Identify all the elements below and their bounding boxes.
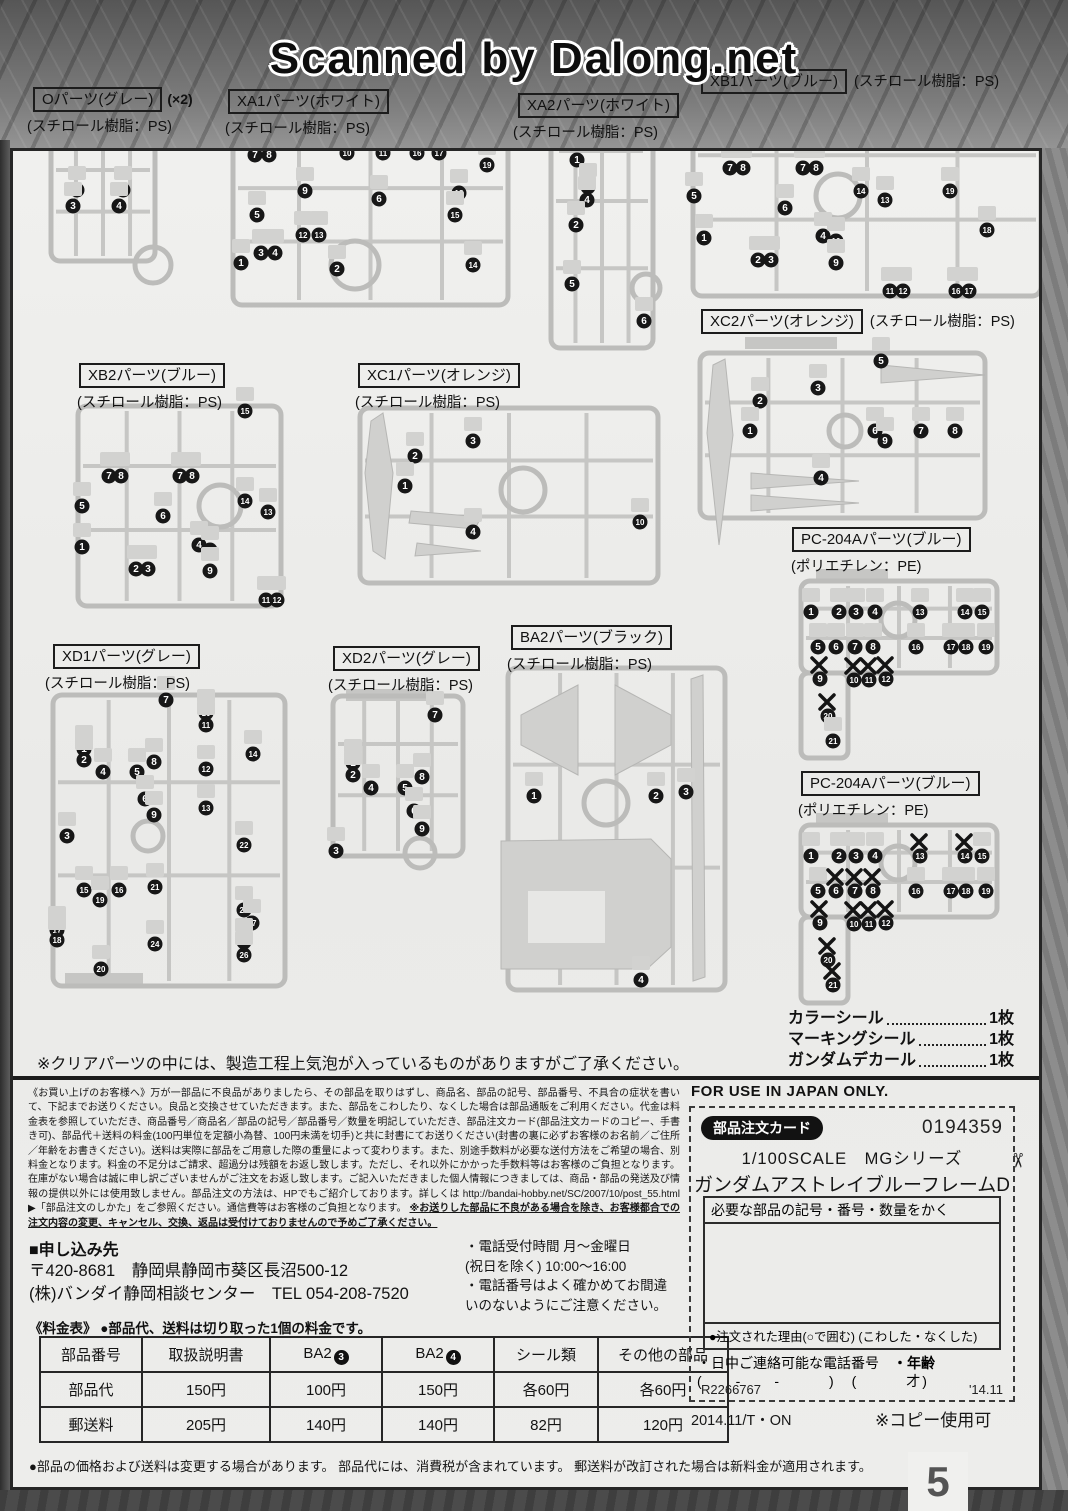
svg-text:7: 7 — [852, 886, 858, 897]
phone-hours-info: ・電話受付時間 月〜金曜日(祝日を除く) 10:00〜16:00・電話番号はよく… — [465, 1237, 667, 1315]
sticker-count: 1枚 — [989, 1046, 1014, 1070]
runner-label-XA2: XA2パーツ(ホワイト)(スチロール樹脂：PS) — [518, 93, 679, 142]
svg-text:4: 4 — [470, 527, 476, 538]
missing-part-x-mark — [812, 658, 826, 672]
svg-text:12: 12 — [299, 231, 308, 240]
missing-part-x-mark — [820, 695, 834, 709]
price-table: 部品番号取扱説明書BA23BA24シール類その他の部品部品代150円100円15… — [39, 1336, 729, 1443]
runner-label-BA2: BA2パーツ(ブラック)(スチロール樹脂：PS) — [511, 625, 672, 674]
price-table-cell: 82円 — [494, 1407, 598, 1442]
order-card-ref: R2266767 — [701, 1382, 761, 1397]
runner-PC-204A-2: 123413141556781617181991011122021 — [801, 813, 997, 1003]
svg-text:12: 12 — [882, 919, 891, 928]
svg-text:14: 14 — [469, 261, 478, 270]
scan-right-margin — [1042, 148, 1068, 1490]
svg-text:1: 1 — [79, 542, 85, 553]
sticker-list-item: ガンダムデカール1枚 — [788, 1049, 1014, 1070]
svg-text:13: 13 — [916, 852, 925, 861]
customer-notice: 《お買い上げのお客様へ》万が一部品に不良品がありましたら、その部品を取りはずし、… — [28, 1087, 680, 1231]
price-table-header: シール類 — [494, 1337, 598, 1372]
runner-name: XD2パーツ(グレー) — [333, 646, 480, 671]
svg-text:3: 3 — [258, 248, 264, 259]
svg-text:3: 3 — [853, 607, 859, 618]
svg-text:5: 5 — [815, 886, 821, 897]
svg-text:13: 13 — [264, 508, 273, 517]
svg-text:4: 4 — [272, 248, 278, 259]
svg-text:8: 8 — [419, 772, 425, 783]
phone-info-line: ・電話受付時間 月〜金曜日 — [465, 1237, 667, 1257]
price-table-cell: 郵送料 — [40, 1407, 142, 1442]
order-form-write-area — [705, 1224, 999, 1322]
svg-text:7: 7 — [252, 151, 258, 161]
manual-page: 1234781011161719918651512131342141342561… — [10, 148, 1042, 1490]
runner-label-PC-204A-2: PC-204Aパーツ(ブルー)(ポリエチレン：PE) — [801, 771, 980, 820]
svg-text:8: 8 — [870, 886, 876, 897]
scan-left-edge — [0, 140, 10, 1511]
price-table-cell: 各60円 — [494, 1372, 598, 1407]
runner-material: (ポリエチレン：PE) — [791, 555, 971, 576]
svg-text:11: 11 — [886, 287, 895, 296]
svg-text:2: 2 — [653, 791, 659, 802]
svg-text:2: 2 — [133, 564, 139, 575]
copy-permission-note: ※コピー使用可 — [875, 1406, 991, 1431]
svg-text:14: 14 — [857, 187, 866, 196]
svg-text:26: 26 — [240, 951, 249, 960]
svg-text:4: 4 — [872, 851, 878, 862]
order-form-instruction: 必要な部品の記号・番号・数量をかく — [705, 1198, 999, 1224]
runner-XA1: 78101116171991865151213134214 — [232, 151, 508, 305]
svg-text:3: 3 — [470, 436, 476, 447]
svg-text:8: 8 — [189, 471, 195, 482]
svg-text:11: 11 — [379, 151, 388, 158]
japan-only-note: FOR USE IN JAPAN ONLY. — [691, 1083, 889, 1100]
order-reason-line: ●注文された理由(○で囲む) (こわした・なくした) — [705, 1322, 999, 1348]
svg-text:13: 13 — [202, 804, 211, 813]
parts-order-card: ✂ 部品注文カード 0194359 1/100SCALE MGシリーズ ガンダム… — [689, 1106, 1015, 1402]
svg-text:2: 2 — [350, 770, 356, 781]
svg-text:10: 10 — [850, 920, 859, 929]
order-card-product-name: ガンダムアストレイブルーフレームD — [691, 1170, 1013, 1197]
runner-O: 1234 — [51, 151, 171, 283]
svg-text:7: 7 — [177, 471, 183, 482]
svg-text:1: 1 — [531, 791, 537, 802]
phone-info-line: ・電話番号はよく確かめてお間違 — [465, 1276, 667, 1296]
svg-text:7: 7 — [918, 426, 924, 437]
scissors-icon: ✂ — [1005, 1152, 1030, 1169]
runner-material: (スチロール樹脂：PS) — [513, 121, 679, 142]
price-table-row: 郵送料205円140円140円82円120円 — [40, 1407, 728, 1442]
svg-text:22: 22 — [240, 841, 249, 850]
svg-text:1: 1 — [238, 258, 244, 269]
svg-text:6: 6 — [160, 511, 166, 522]
runner-label-XC1: XC1パーツ(オレンジ)(スチロール樹脂：PS) — [358, 363, 520, 412]
runner-name: PC-204Aパーツ(ブルー) — [792, 527, 971, 552]
runner-name: XA2パーツ(ホワイト) — [518, 93, 679, 118]
runner-name: Oパーツ(グレー) — [33, 87, 162, 112]
runner-XB2: 15787851461314102391112 — [73, 387, 286, 608]
runner-sprues-svg: 1234781011161719918651512131342141342561… — [13, 151, 1039, 1056]
svg-text:11: 11 — [202, 721, 211, 730]
svg-text:9: 9 — [419, 824, 425, 835]
runner-label-XC2: XC2パーツ(オレンジ)(スチロール樹脂：PS) — [701, 309, 1015, 334]
runner-XD1: 7101112144581261393221516211923271718242… — [48, 676, 285, 986]
price-table-cell: 150円 — [382, 1372, 494, 1407]
svg-text:14: 14 — [961, 608, 970, 617]
svg-text:21: 21 — [829, 737, 838, 746]
runner-XA2: 134256 — [551, 151, 660, 348]
price-table-header: 取扱説明書 — [142, 1337, 270, 1372]
svg-text:16: 16 — [912, 643, 921, 652]
svg-text:6: 6 — [782, 203, 788, 214]
svg-text:15: 15 — [80, 886, 89, 895]
svg-text:18: 18 — [962, 887, 971, 896]
missing-part-x-mark — [957, 835, 971, 849]
svg-text:14: 14 — [241, 497, 250, 506]
svg-text:3: 3 — [768, 255, 774, 266]
runner-name: BA2パーツ(ブラック) — [511, 625, 672, 650]
svg-text:19: 19 — [946, 187, 955, 196]
svg-text:8: 8 — [151, 757, 157, 768]
runner-material: (スチロール樹脂：PS) — [225, 117, 389, 138]
svg-text:2: 2 — [334, 264, 340, 275]
svg-text:4: 4 — [818, 473, 824, 484]
svg-text:6: 6 — [376, 194, 382, 205]
order-form-box: 必要な部品の記号・番号・数量をかく ●注文された理由(○で囲む) (こわした・な… — [703, 1196, 1001, 1350]
price-table-cell: 205円 — [142, 1407, 270, 1442]
svg-text:3: 3 — [333, 846, 339, 857]
svg-text:18: 18 — [983, 226, 992, 235]
svg-text:16: 16 — [912, 887, 921, 896]
svg-text:1: 1 — [808, 607, 814, 618]
price-table-title-text: 《料金表》 — [29, 1321, 97, 1336]
svg-text:1: 1 — [747, 426, 753, 437]
svg-text:4: 4 — [116, 201, 122, 212]
svg-text:16: 16 — [413, 151, 422, 158]
scanned-manual-page: { "watermark": "Scanned by Dalong.net", … — [0, 0, 1068, 1511]
phone-info-line: (祝日を除く) 10:00〜16:00 — [465, 1257, 667, 1277]
runner-label-XB2: XB2パーツ(ブルー)(スチロール樹脂：PS) — [79, 363, 225, 412]
age-label: ・年齢 — [893, 1355, 935, 1371]
svg-text:15: 15 — [978, 852, 987, 861]
svg-text:6: 6 — [833, 886, 839, 897]
svg-text:2: 2 — [412, 451, 418, 462]
runner-material: (スチロール樹脂：PS) — [854, 74, 999, 90]
svg-text:7: 7 — [852, 642, 858, 653]
order-card-footer: R2266767 '14.11 — [701, 1382, 1003, 1397]
price-table-header: 部品番号 — [40, 1337, 142, 1372]
svg-text:9: 9 — [151, 810, 157, 821]
svg-text:19: 19 — [96, 896, 105, 905]
runner-name: XD1パーツ(グレー) — [53, 644, 200, 669]
svg-text:1: 1 — [701, 233, 707, 244]
svg-text:1: 1 — [808, 851, 814, 862]
price-table-cell: 140円 — [270, 1407, 382, 1442]
price-table-header: BA24 — [382, 1337, 494, 1372]
runner-material: (スチロール樹脂：PS) — [45, 672, 200, 693]
contact-company-phone: (株)バンダイ静岡相談センター TEL 054-208-7520 — [29, 1280, 409, 1304]
contact-postal-address: 〒420-8681 静岡県静岡市葵区長沼500-12 — [29, 1257, 348, 1281]
runner-label-XD2: XD2パーツ(グレー)(スチロール樹脂：PS) — [333, 646, 480, 695]
watermark: Scanned by Dalong.net — [270, 34, 799, 84]
svg-text:15: 15 — [241, 407, 250, 416]
price-table-subtitle: ●部品代、送料は切り取った1個の料金です。 — [100, 1321, 371, 1336]
dot-leader — [919, 1065, 986, 1067]
svg-text:20: 20 — [97, 965, 106, 974]
runner-name: XC1パーツ(オレンジ) — [358, 363, 520, 388]
section-divider — [13, 1076, 1039, 1080]
order-card-badge: 部品注文カード — [701, 1116, 823, 1140]
svg-text:9: 9 — [207, 566, 213, 577]
runner-XC2: 532167894 — [700, 337, 985, 545]
runner-name: PC-204Aパーツ(ブルー) — [801, 771, 980, 796]
order-card-code: 0194359 — [922, 1117, 1003, 1139]
runner-material: (スチロール樹脂：PS) — [77, 391, 225, 412]
svg-text:9: 9 — [817, 918, 823, 929]
runner-XC1: 231410 — [360, 408, 658, 583]
clear-parts-note: ※クリアパーツの中には、製造工程上気泡が入っているものがありますがご了承ください… — [37, 1050, 689, 1074]
price-table-title: 《料金表》 ●部品代、送料は切り取った1個の料金です。 — [29, 1317, 371, 1337]
svg-text:17: 17 — [947, 887, 956, 896]
svg-text:16: 16 — [115, 886, 124, 895]
svg-text:10: 10 — [850, 676, 859, 685]
missing-part-x-mark — [820, 939, 834, 953]
svg-text:2: 2 — [836, 607, 842, 618]
runner-BA2: 1234 — [501, 668, 725, 990]
phone-label: ・日中ご連絡可能な電話番号 — [697, 1355, 879, 1371]
price-table-header: BA23 — [270, 1337, 382, 1372]
price-table-cell: 100円 — [270, 1372, 382, 1407]
svg-text:7: 7 — [432, 710, 438, 721]
runner-name: XC2パーツ(オレンジ) — [701, 309, 863, 334]
circled-number: 4 — [446, 1350, 461, 1365]
svg-text:4: 4 — [368, 783, 374, 794]
price-table-cell: 部品代 — [40, 1372, 142, 1407]
svg-text:24: 24 — [151, 940, 160, 949]
svg-text:4: 4 — [820, 231, 826, 242]
svg-text:5: 5 — [79, 501, 85, 512]
svg-text:13: 13 — [315, 231, 324, 240]
svg-text:19: 19 — [483, 161, 492, 170]
svg-text:4: 4 — [872, 607, 878, 618]
runner-material: (スチロール樹脂：PS) — [328, 674, 480, 695]
svg-text:13: 13 — [916, 608, 925, 617]
order-card-date: '14.11 — [969, 1382, 1003, 1397]
runner-name: XB2パーツ(ブルー) — [79, 363, 225, 388]
svg-text:7: 7 — [163, 695, 169, 706]
svg-text:21: 21 — [151, 883, 160, 892]
phone-age-line: ・日中ご連絡可能な電話番号・年齢 — [697, 1353, 935, 1373]
svg-text:4: 4 — [638, 975, 644, 986]
svg-text:17: 17 — [947, 643, 956, 652]
svg-text:5: 5 — [878, 356, 884, 367]
svg-text:2: 2 — [755, 255, 761, 266]
svg-text:14: 14 — [249, 750, 258, 759]
svg-text:8: 8 — [813, 163, 819, 174]
price-footnote: ●部品の価格および送料は変更する場合があります。 部品代には、消費税が含まれてい… — [29, 1456, 872, 1475]
page-number: 5 — [908, 1452, 968, 1511]
svg-text:8: 8 — [118, 471, 124, 482]
missing-part-x-mark — [878, 902, 892, 916]
svg-text:7: 7 — [800, 163, 806, 174]
svg-text:2: 2 — [836, 851, 842, 862]
order-card-header-row: 部品注文カード 0194359 — [701, 1116, 1003, 1140]
svg-text:9: 9 — [882, 436, 888, 447]
price-table-cell: 140円 — [382, 1407, 494, 1442]
runner-material: (スチロール樹脂：PS) — [355, 391, 520, 412]
svg-text:5: 5 — [254, 210, 260, 221]
runner-label-XA1: XA1パーツ(ホワイト)(スチロール樹脂：PS) — [228, 89, 389, 138]
svg-text:5: 5 — [691, 191, 697, 202]
parts-runner-diagrams: 1234781011161719918651512131342141342561… — [13, 151, 1039, 1071]
svg-text:11: 11 — [865, 676, 874, 685]
svg-text:7: 7 — [106, 471, 112, 482]
svg-text:16: 16 — [952, 287, 961, 296]
customer-notice-body: 《お買い上げのお客様へ》万が一部品に不良品がありましたら、その部品を取りはずし、… — [28, 1088, 680, 1214]
svg-text:3: 3 — [70, 201, 76, 212]
svg-text:18: 18 — [53, 936, 62, 945]
print-code: 2014.11/T・ON — [691, 1409, 791, 1430]
order-card-scale-line: 1/100SCALE MGシリーズ — [691, 1145, 1013, 1169]
svg-text:3: 3 — [815, 383, 821, 394]
phone-info-line: いのないようにご注意ください。 — [465, 1296, 667, 1316]
svg-text:17: 17 — [435, 151, 444, 158]
runner-material: (スチロール樹脂：PS) — [870, 314, 1015, 330]
svg-text:9: 9 — [833, 258, 839, 269]
runner-label-XD1: XD1パーツ(グレー)(スチロール樹脂：PS) — [53, 644, 200, 693]
svg-text:6: 6 — [833, 642, 839, 653]
svg-text:3: 3 — [64, 831, 70, 842]
svg-text:12: 12 — [202, 765, 211, 774]
svg-text:8: 8 — [740, 163, 746, 174]
runner-label-PC-204A-1: PC-204Aパーツ(ブルー)(ポリエチレン：PE) — [792, 527, 971, 576]
svg-text:12: 12 — [273, 596, 282, 605]
svg-text:4: 4 — [584, 195, 590, 206]
missing-part-x-mark — [812, 902, 826, 916]
runner-label-O: Oパーツ(グレー)(×2)(スチロール樹脂：PS) — [33, 87, 193, 136]
price-table-cell: 150円 — [142, 1372, 270, 1407]
svg-text:14: 14 — [961, 852, 970, 861]
missing-part-x-mark — [912, 835, 926, 849]
svg-text:4: 4 — [100, 767, 106, 778]
svg-text:12: 12 — [899, 287, 908, 296]
runner-material: (スチロール樹脂：PS) — [27, 115, 193, 136]
svg-text:9: 9 — [302, 186, 308, 197]
runner-material: (スチロール樹脂：PS) — [507, 653, 672, 674]
svg-text:17: 17 — [965, 287, 974, 296]
dot-leader — [919, 1044, 987, 1046]
runner-XB1: 152078785146131918141023911121617 — [685, 151, 1039, 299]
sticker-name: ガンダムデカール — [788, 1046, 916, 1070]
runner-material: (ポリエチレン：PE) — [798, 799, 980, 820]
missing-part-x-mark — [878, 658, 892, 672]
runner-quantity: (×2) — [167, 91, 192, 107]
runner-PC-204A-1: 123413141556781617181991011122021 — [801, 569, 997, 758]
svg-text:13: 13 — [881, 196, 890, 205]
sticker-list: カラーシール1枚マーキングシール1枚ガンダムデカール1枚 — [788, 1007, 1014, 1070]
svg-text:12: 12 — [882, 675, 891, 684]
svg-text:15: 15 — [978, 608, 987, 617]
svg-text:1: 1 — [402, 481, 408, 492]
svg-text:7: 7 — [727, 163, 733, 174]
svg-text:3: 3 — [683, 787, 689, 798]
svg-text:2: 2 — [81, 755, 87, 766]
svg-text:8: 8 — [870, 642, 876, 653]
svg-text:19: 19 — [982, 887, 991, 896]
circled-number: 3 — [334, 1350, 349, 1365]
runner-XD2: 712845693 — [327, 689, 463, 868]
svg-text:9: 9 — [817, 674, 823, 685]
price-table-row: 部品代150円100円150円各60円各60円 — [40, 1372, 728, 1407]
svg-text:3: 3 — [853, 851, 859, 862]
svg-text:15: 15 — [451, 211, 460, 220]
svg-text:10: 10 — [343, 151, 352, 158]
svg-text:5: 5 — [569, 279, 575, 290]
svg-text:8: 8 — [952, 426, 958, 437]
svg-text:2: 2 — [757, 396, 763, 407]
svg-text:5: 5 — [815, 642, 821, 653]
svg-text:3: 3 — [145, 564, 151, 575]
svg-text:18: 18 — [962, 643, 971, 652]
runner-name: XA1パーツ(ホワイト) — [228, 89, 389, 114]
svg-text:11: 11 — [262, 596, 271, 605]
svg-text:6: 6 — [641, 316, 647, 327]
svg-text:10: 10 — [636, 518, 645, 527]
svg-text:8: 8 — [266, 151, 272, 161]
svg-text:19: 19 — [982, 643, 991, 652]
svg-text:11: 11 — [865, 920, 874, 929]
svg-text:21: 21 — [829, 981, 838, 990]
svg-text:2: 2 — [573, 220, 579, 231]
